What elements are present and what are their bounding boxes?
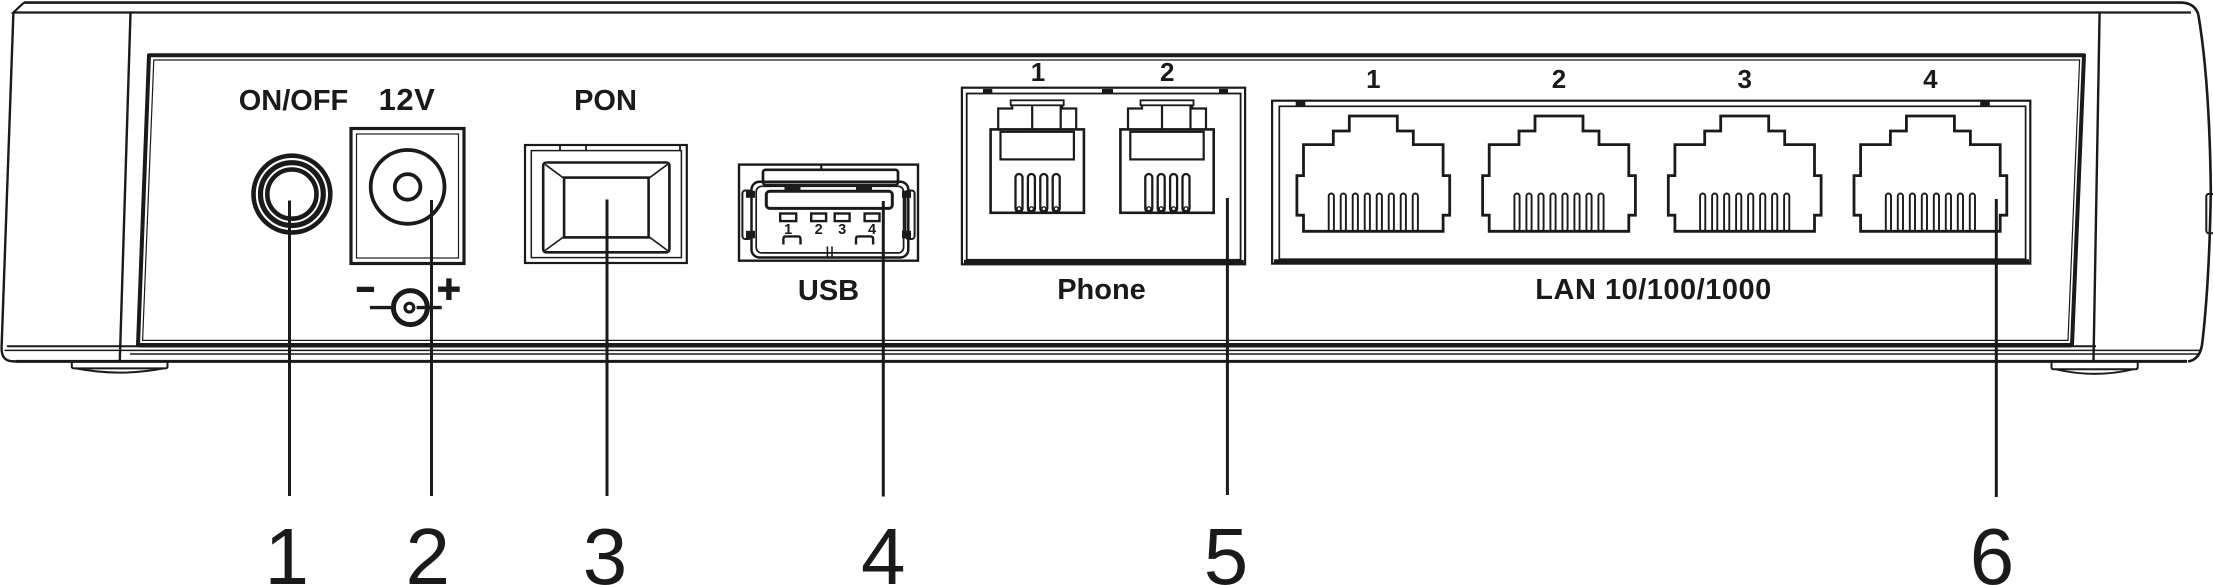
svg-text:2: 2 [1160, 57, 1174, 87]
svg-text:3: 3 [1737, 64, 1751, 94]
svg-text:3: 3 [583, 512, 628, 585]
svg-text:3: 3 [838, 222, 846, 238]
svg-text:ON/OFF: ON/OFF [239, 85, 349, 117]
svg-text:LAN 10/100/1000: LAN 10/100/1000 [1535, 274, 1771, 306]
svg-text:USB: USB [798, 275, 859, 307]
svg-text:1: 1 [1366, 64, 1380, 94]
svg-text:5: 5 [1204, 512, 1249, 585]
svg-text:PON: PON [574, 85, 637, 117]
svg-text:2: 2 [406, 512, 451, 585]
svg-text:Phone: Phone [1057, 274, 1146, 306]
svg-text:2: 2 [1552, 64, 1566, 94]
svg-text:2: 2 [815, 222, 823, 238]
svg-text:1: 1 [265, 512, 310, 585]
svg-text:12V: 12V [379, 82, 436, 117]
svg-text:6: 6 [1970, 512, 2015, 585]
svg-text:4: 4 [1923, 64, 1938, 94]
svg-text:1: 1 [1031, 57, 1045, 87]
svg-text:4: 4 [861, 512, 906, 585]
